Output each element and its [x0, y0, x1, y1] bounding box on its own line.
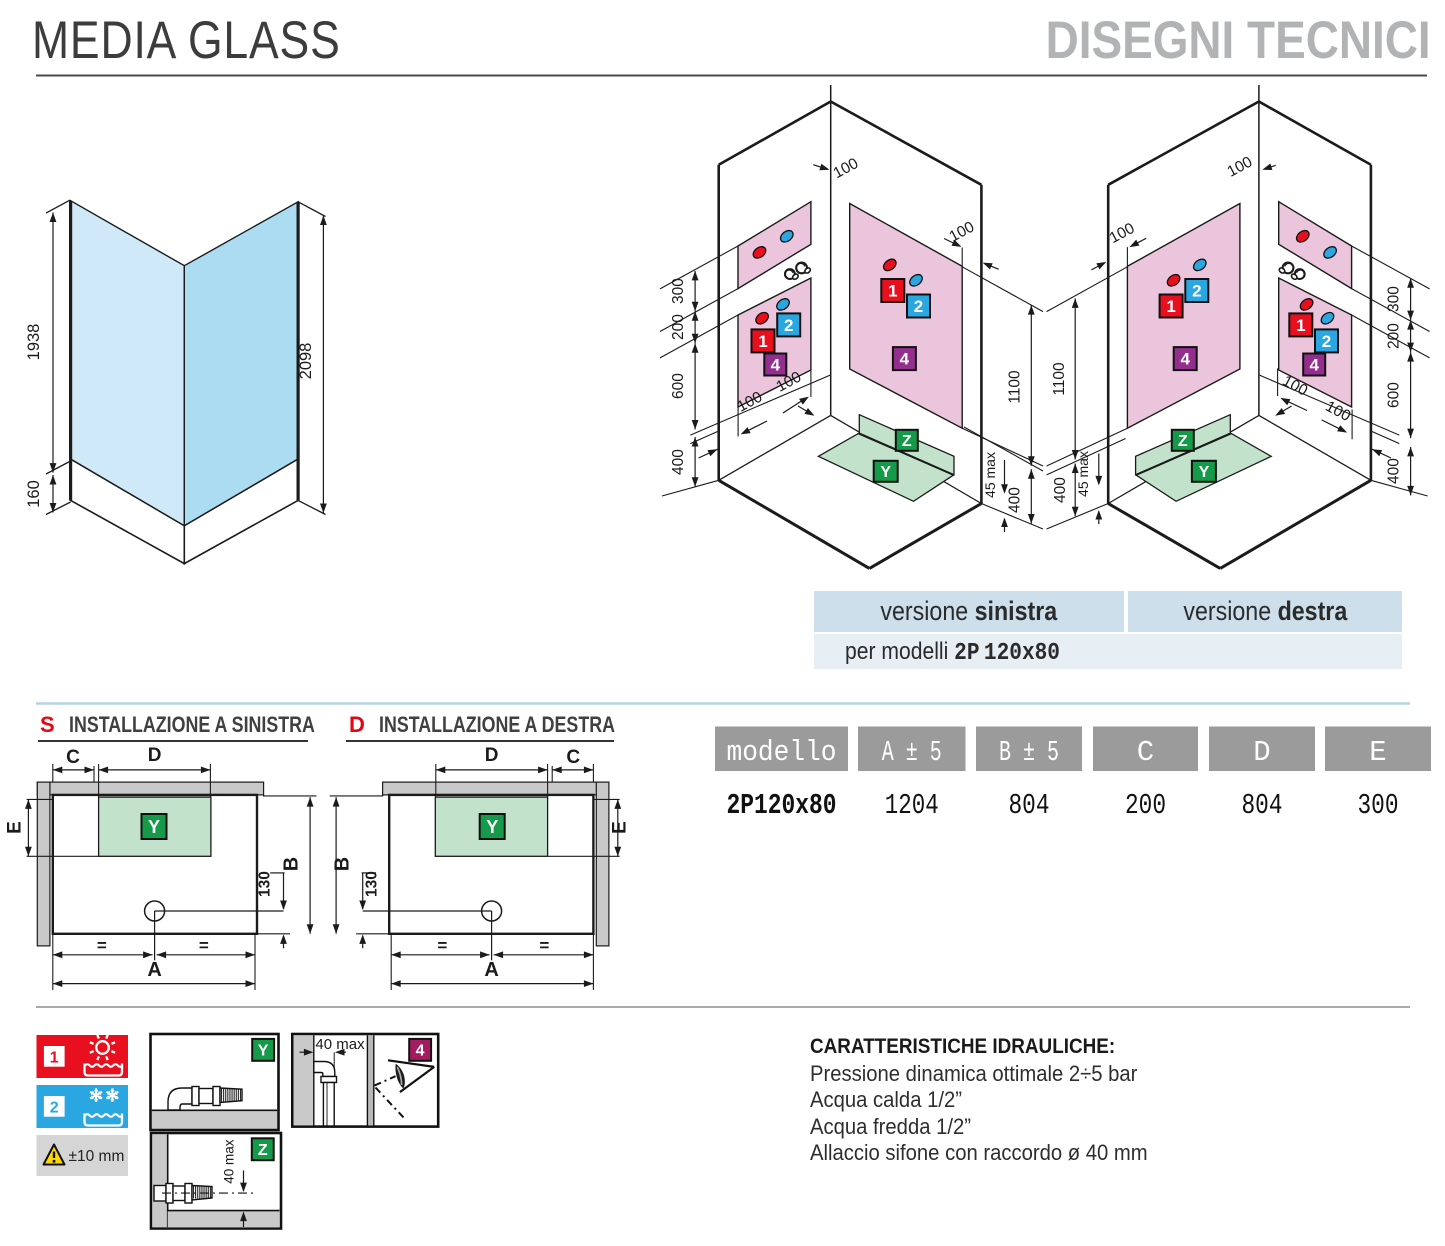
svg-text:1204: 1204 [885, 789, 939, 822]
svg-text:300: 300 [1358, 789, 1399, 822]
svg-text:D: D [1253, 736, 1270, 769]
svg-text:E: E [1369, 736, 1386, 769]
svg-text:2P120x80: 2P120x80 [727, 789, 837, 822]
svg-text:C: C [1137, 736, 1154, 769]
svg-text:A ± 5: A ± 5 [882, 736, 942, 769]
svg-text:804: 804 [1242, 789, 1283, 822]
svg-text:200: 200 [1125, 789, 1166, 822]
svg-text:modello: modello [727, 736, 837, 769]
svg-text:804: 804 [1009, 789, 1050, 822]
svg-text:B ± 5: B ± 5 [999, 736, 1059, 769]
